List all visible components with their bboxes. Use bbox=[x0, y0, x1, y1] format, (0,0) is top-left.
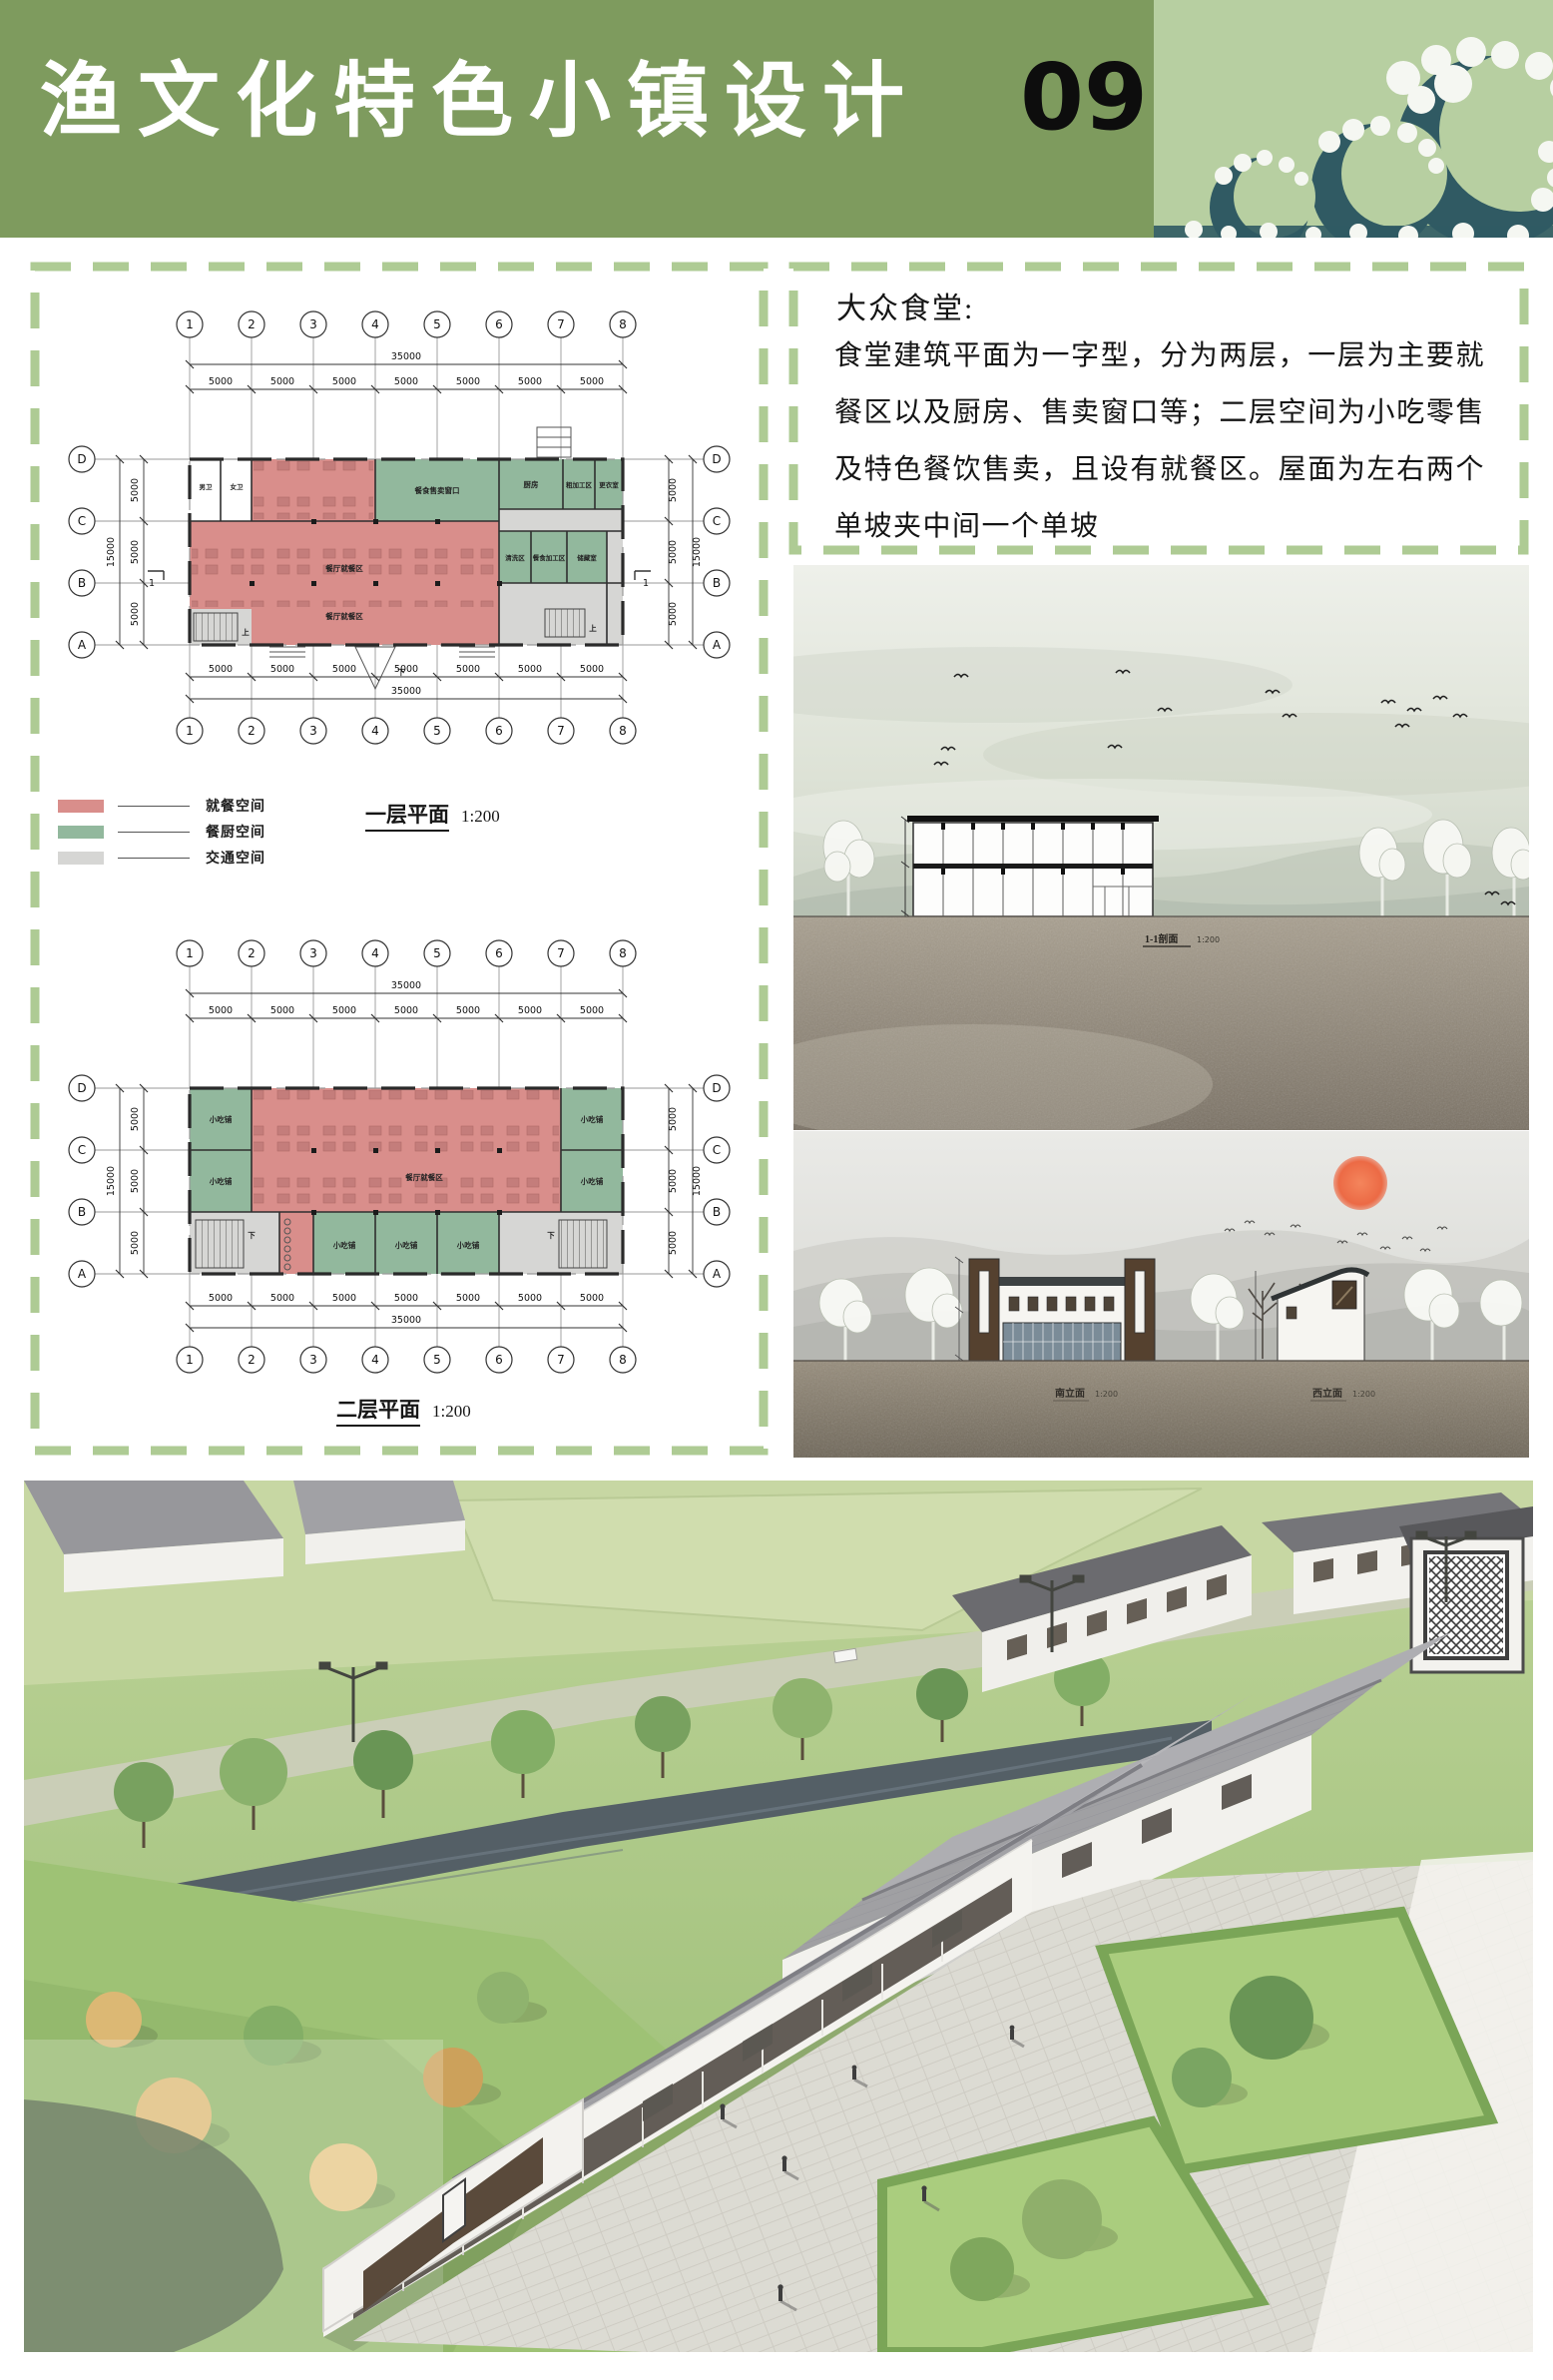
poster-title: 渔文化特色小镇设计 bbox=[40, 34, 920, 153]
wash-overlay bbox=[24, 1481, 1533, 2352]
floor-plan-panel: 1 1 男卫 女卫 餐食售卖窗口 厨房 粗加工区 更衣室 清洗区 餐食加工区 储… bbox=[30, 262, 769, 1456]
grid-col-label: 4 bbox=[371, 724, 379, 738]
stair-label: 上 bbox=[242, 627, 250, 637]
dim-label: 35000 bbox=[391, 980, 421, 991]
building-section-drawing bbox=[901, 816, 1159, 916]
dim-label: 5000 bbox=[668, 478, 679, 502]
grid-col-label: 6 bbox=[495, 946, 503, 960]
ground-texture bbox=[793, 1361, 1529, 1458]
plan1-caption: 一层平面1:200 bbox=[365, 799, 500, 829]
grid-col-label: 2 bbox=[248, 946, 256, 960]
grid-col-label: 8 bbox=[619, 317, 627, 331]
grid-row-label: D bbox=[77, 1081, 86, 1095]
section-mark-label: 1 bbox=[643, 578, 649, 589]
plan1-scale: 1:200 bbox=[461, 807, 500, 826]
dim-label: 5000 bbox=[270, 1005, 294, 1016]
elevation-render-image: 南立面 1:200 西立面 1:200 bbox=[793, 1131, 1529, 1458]
grid-row-label: A bbox=[78, 638, 87, 652]
dim-label: 5000 bbox=[580, 1293, 604, 1304]
grid-row-label: B bbox=[78, 1205, 86, 1219]
room-label: 餐厅就餐区 bbox=[404, 1172, 443, 1182]
dim-label: 5000 bbox=[668, 1107, 679, 1131]
room-label: 小吃铺 bbox=[210, 1176, 233, 1186]
sun-icon bbox=[1333, 1156, 1387, 1210]
south-caption-text: 南立面 bbox=[1055, 1387, 1085, 1400]
grid-col-label: 1 bbox=[186, 1353, 194, 1367]
dim-label: 5000 bbox=[209, 1293, 233, 1304]
grid-row-label: D bbox=[77, 452, 86, 466]
room-label: 小吃铺 bbox=[581, 1176, 604, 1186]
grid-col-label: 2 bbox=[248, 1353, 256, 1367]
dim-label: 5000 bbox=[668, 540, 679, 564]
grid-col-label: 1 bbox=[186, 724, 194, 738]
legend-item-circulation: 交通空间 bbox=[58, 847, 265, 869]
dim-label: 5000 bbox=[270, 376, 294, 387]
dim-label: 5000 bbox=[332, 1005, 356, 1016]
grid-row-label: C bbox=[78, 514, 86, 528]
section-render: 1-1剖面 1:200 bbox=[793, 565, 1529, 1130]
room-label: 餐厅就餐区 bbox=[324, 611, 363, 621]
plan1-caption-text: 一层平面 bbox=[365, 803, 449, 832]
dim-label: 15000 bbox=[106, 1166, 117, 1196]
dim-label: 5000 bbox=[209, 1005, 233, 1016]
dim-label: 5000 bbox=[456, 1005, 480, 1016]
stair-label: 下 bbox=[248, 1231, 256, 1240]
grid-col-label: 6 bbox=[495, 724, 503, 738]
grid-col-label: 4 bbox=[371, 946, 379, 960]
plan2-caption-text: 二层平面 bbox=[336, 1398, 420, 1427]
legend-item-dining: 就餐空间 bbox=[58, 795, 265, 817]
legend-line bbox=[118, 858, 190, 859]
dim-label: 15000 bbox=[692, 537, 703, 567]
grid-row-label: C bbox=[713, 514, 721, 528]
dim-label: 5000 bbox=[332, 376, 356, 387]
grid-row-label: C bbox=[78, 1143, 86, 1157]
legend-swatch-green bbox=[58, 826, 104, 839]
south-scale-text: 1:200 bbox=[1095, 1390, 1118, 1399]
grid-col-label: 2 bbox=[248, 317, 256, 331]
stair-label: 下 bbox=[547, 1231, 555, 1240]
section-scale-text: 1:200 bbox=[1197, 935, 1220, 944]
room-label: 餐食加工区 bbox=[532, 553, 566, 562]
dim-label: 5000 bbox=[394, 376, 418, 387]
legend-swatch-red bbox=[58, 800, 104, 813]
second-floor-plan: 小吃铺 小吃铺 小吃铺 小吃铺 小吃铺 小吃铺 小吃铺 餐厅就餐区 下 下 35… bbox=[40, 908, 759, 1378]
grid-row-label: B bbox=[78, 576, 86, 590]
dim-label: 5000 bbox=[518, 664, 542, 675]
legend-line bbox=[118, 806, 190, 807]
grid-row-label: B bbox=[713, 1205, 721, 1219]
aerial-render bbox=[24, 1481, 1533, 2352]
grid-col-label: 3 bbox=[309, 317, 317, 331]
wave-icon bbox=[1154, 0, 1553, 238]
grid-col-label: 8 bbox=[619, 1353, 627, 1367]
grid-col-label: 5 bbox=[433, 317, 441, 331]
west-caption-text: 西立面 bbox=[1312, 1387, 1342, 1400]
section-mark-label: 1 bbox=[149, 578, 155, 589]
legend-label: 交通空间 bbox=[206, 848, 265, 868]
dim-label: 5000 bbox=[209, 664, 233, 675]
dim-label: 5000 bbox=[518, 376, 542, 387]
page-number: 09 bbox=[1020, 44, 1148, 151]
room-label: 厨房 bbox=[524, 479, 539, 489]
dim-label: 5000 bbox=[130, 478, 141, 502]
plan2-scale: 1:200 bbox=[432, 1402, 471, 1421]
poster-page: 渔文化特色小镇设计 09 bbox=[0, 0, 1553, 2380]
dim-label: 35000 bbox=[391, 1315, 421, 1326]
section-render-image: 1-1剖面 1:200 bbox=[793, 565, 1529, 1130]
room-label: 更衣室 bbox=[599, 480, 619, 489]
dim-label: 5000 bbox=[580, 664, 604, 675]
room-label: 小吃铺 bbox=[210, 1114, 233, 1124]
plan-legend: 就餐空间 餐厨空间 交通空间 bbox=[58, 795, 265, 873]
room-label: 储藏室 bbox=[576, 553, 597, 562]
dim-label: 35000 bbox=[391, 686, 421, 697]
room-label: 粗加工区 bbox=[566, 480, 593, 489]
grid-col-label: 6 bbox=[495, 317, 503, 331]
description-body: 食堂建筑平面为一字型，分为两层，一层为主要就餐区以及厨房、售卖窗口等；二层空间为… bbox=[834, 327, 1485, 555]
dim-label: 5000 bbox=[668, 1169, 679, 1193]
grid-col-label: 7 bbox=[557, 1353, 565, 1367]
dim-label: 5000 bbox=[130, 1169, 141, 1193]
grid-col-label: 4 bbox=[371, 317, 379, 331]
dim-label: 5000 bbox=[518, 1293, 542, 1304]
dim-label: 5000 bbox=[130, 602, 141, 626]
room-label: 小吃铺 bbox=[395, 1240, 418, 1250]
legend-label: 就餐空间 bbox=[206, 796, 265, 816]
room-label: 女卫 bbox=[231, 482, 245, 491]
grid-row-label: A bbox=[713, 1267, 722, 1281]
grid-col-label: 8 bbox=[619, 724, 627, 738]
dim-label: 5000 bbox=[394, 664, 418, 675]
grid-col-label: 7 bbox=[557, 946, 565, 960]
dim-label: 5000 bbox=[580, 376, 604, 387]
legend-line bbox=[118, 832, 190, 833]
grid-col-label: 8 bbox=[619, 946, 627, 960]
dim-label: 5000 bbox=[394, 1005, 418, 1016]
grid-col-label: 2 bbox=[248, 724, 256, 738]
dim-label: 5000 bbox=[456, 664, 480, 675]
grid-col-label: 5 bbox=[433, 1353, 441, 1367]
dim-label: 5000 bbox=[130, 1107, 141, 1131]
west-scale-text: 1:200 bbox=[1352, 1390, 1375, 1399]
grid-col-label: 7 bbox=[557, 317, 565, 331]
dim-label: 5000 bbox=[456, 376, 480, 387]
description-panel: 大众食堂: 食堂建筑平面为一字型，分为两层，一层为主要就餐区以及厨房、售卖窗口等… bbox=[788, 262, 1529, 555]
grid-col-label: 3 bbox=[309, 1353, 317, 1367]
header-wave-block bbox=[1154, 0, 1553, 238]
legend-swatch-gray bbox=[58, 852, 104, 865]
dim-label: 5000 bbox=[270, 1293, 294, 1304]
room-label: 小吃铺 bbox=[581, 1114, 604, 1124]
grid-row-label: D bbox=[712, 452, 721, 466]
room-label: 小吃铺 bbox=[457, 1240, 480, 1250]
dim-label: 5000 bbox=[394, 1293, 418, 1304]
elevation-render: 南立面 1:200 西立面 1:200 bbox=[793, 1131, 1529, 1458]
grid-col-label: 1 bbox=[186, 317, 194, 331]
room-label: 男卫 bbox=[199, 483, 214, 491]
grid-row-label: B bbox=[713, 576, 721, 590]
dim-label: 5000 bbox=[130, 540, 141, 564]
grid-row-label: D bbox=[712, 1081, 721, 1095]
room-label: 清洗区 bbox=[505, 553, 525, 562]
description-title: 大众食堂: bbox=[836, 284, 974, 327]
grid-col-label: 6 bbox=[495, 1353, 503, 1367]
dim-label: 35000 bbox=[391, 351, 421, 362]
grid-row-label: C bbox=[713, 1143, 721, 1157]
room-label: 餐厅就餐区 bbox=[324, 563, 363, 573]
grid-row-label: A bbox=[78, 1267, 87, 1281]
dim-label: 5000 bbox=[332, 1293, 356, 1304]
grid-col-label: 5 bbox=[433, 724, 441, 738]
dim-label: 5000 bbox=[270, 664, 294, 675]
grid-col-label: 7 bbox=[557, 724, 565, 738]
dim-label: 5000 bbox=[668, 602, 679, 626]
grid-row-label: A bbox=[713, 638, 722, 652]
dim-label: 15000 bbox=[106, 537, 117, 567]
first-floor-plan: 1 1 男卫 女卫 餐食售卖窗口 厨房 粗加工区 更衣室 清洗区 餐食加工区 储… bbox=[40, 280, 759, 749]
grid-col-label: 1 bbox=[186, 946, 194, 960]
stair-label: 上 bbox=[589, 623, 597, 633]
header-band: 渔文化特色小镇设计 09 bbox=[0, 0, 1154, 238]
grid-col-label: 3 bbox=[309, 724, 317, 738]
legend-label: 餐厨空间 bbox=[206, 822, 265, 842]
grid-col-label: 3 bbox=[309, 946, 317, 960]
grid-col-label: 5 bbox=[433, 946, 441, 960]
section-caption-text: 1-1剖面 bbox=[1145, 932, 1178, 945]
aerial-render-image bbox=[24, 1481, 1533, 2352]
grid-col-label: 4 bbox=[371, 1353, 379, 1367]
room-label: 餐食售卖窗口 bbox=[414, 485, 460, 495]
dim-label: 5000 bbox=[668, 1231, 679, 1255]
dim-label: 5000 bbox=[209, 376, 233, 387]
plan2-caption: 二层平面1:200 bbox=[336, 1394, 471, 1424]
dim-label: 5000 bbox=[580, 1005, 604, 1016]
dim-label: 5000 bbox=[518, 1005, 542, 1016]
dim-label: 5000 bbox=[332, 664, 356, 675]
dim-label: 15000 bbox=[692, 1166, 703, 1196]
dim-label: 5000 bbox=[456, 1293, 480, 1304]
room-label: 小吃铺 bbox=[333, 1240, 356, 1250]
ground-texture bbox=[793, 916, 1529, 1130]
legend-item-kitchen: 餐厨空间 bbox=[58, 821, 265, 843]
dim-label: 5000 bbox=[130, 1231, 141, 1255]
